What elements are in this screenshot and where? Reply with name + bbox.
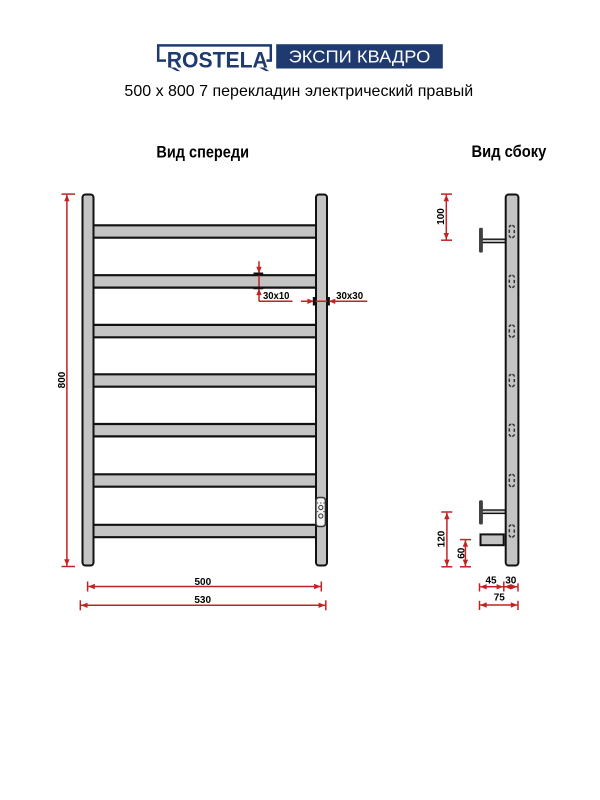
svg-text:60: 60	[456, 547, 467, 559]
svg-text:ЭКСПИ КВАДРО: ЭКСПИ КВАДРО	[289, 46, 431, 66]
svg-text:500: 500	[194, 577, 211, 588]
svg-text:45: 45	[485, 576, 497, 587]
svg-text:30x30: 30x30	[336, 290, 363, 302]
svg-text:75: 75	[494, 593, 506, 604]
svg-text:30: 30	[505, 576, 517, 587]
svg-text:500 x 800 7 перекладин электри: 500 x 800 7 перекладин электрический пра…	[124, 83, 473, 100]
svg-text:30x10: 30x10	[263, 290, 290, 302]
svg-text:120: 120	[436, 530, 447, 547]
svg-text:Вид спереди: Вид спереди	[156, 143, 249, 161]
svg-text:800: 800	[57, 371, 68, 388]
svg-text:100: 100	[436, 208, 447, 225]
svg-text:530: 530	[194, 595, 211, 606]
svg-text:Вид сбоку: Вид сбоку	[472, 143, 547, 161]
svg-text:ROSTELA: ROSTELA	[167, 47, 268, 72]
